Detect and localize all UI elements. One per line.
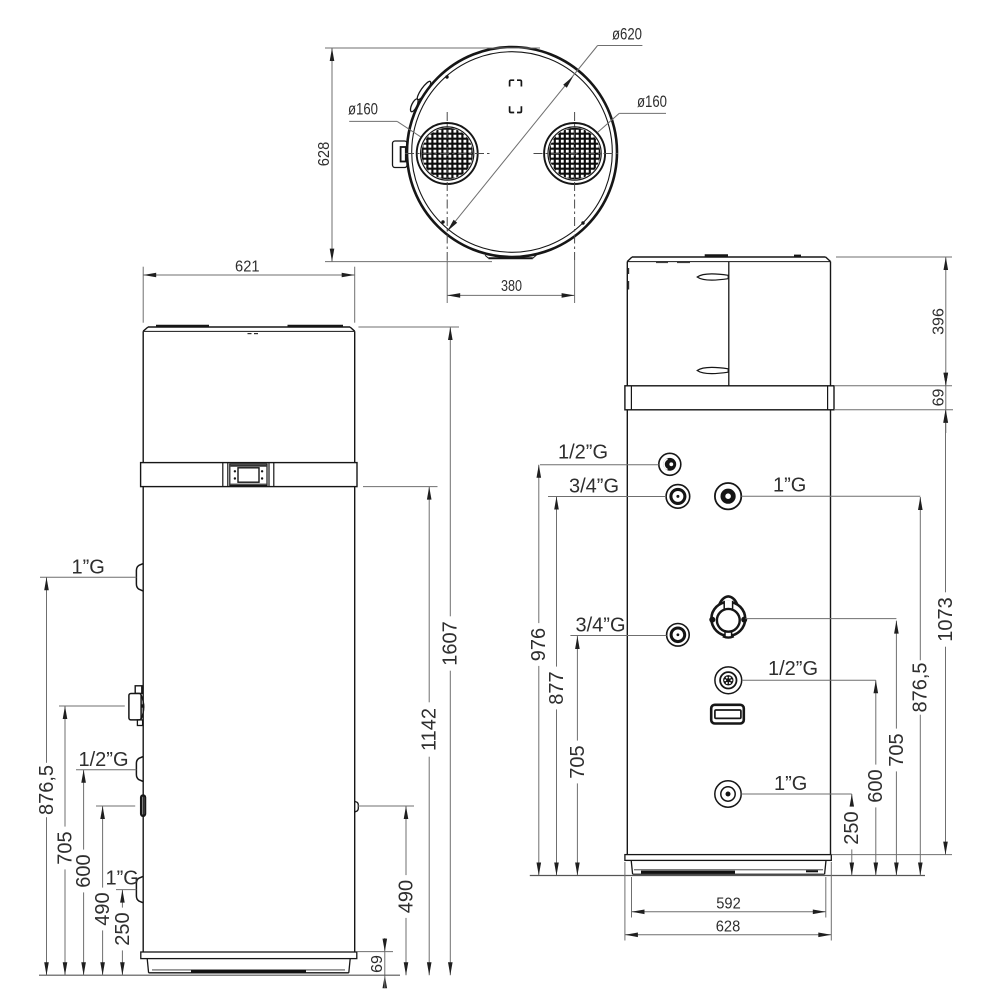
svg-text:600: 600 [73,854,95,887]
svg-text:490: 490 [92,892,114,925]
svg-text:ø160: ø160 [348,100,378,119]
svg-text:3/4”G: 3/4”G [569,476,619,498]
svg-text:69: 69 [931,389,948,407]
svg-text:1”G: 1”G [773,475,806,497]
svg-text:621: 621 [235,259,260,276]
svg-text:69: 69 [369,955,386,973]
svg-text:592: 592 [716,896,741,913]
svg-text:1073: 1073 [935,597,957,642]
svg-text:876,5: 876,5 [910,662,932,712]
svg-text:250: 250 [841,811,863,844]
svg-text:1”G: 1”G [72,557,105,579]
svg-text:1/2”G: 1/2”G [558,442,608,464]
svg-text:1607: 1607 [440,621,462,666]
svg-text:250: 250 [112,912,134,945]
svg-text:705: 705 [886,733,908,766]
svg-text:1/2”G: 1/2”G [768,658,818,680]
svg-text:ø160: ø160 [637,92,667,111]
svg-text:600: 600 [865,769,887,802]
svg-text:876,5: 876,5 [36,765,58,815]
svg-text:976: 976 [528,628,550,661]
svg-text:396: 396 [931,308,948,335]
svg-text:ø620: ø620 [612,25,642,44]
svg-text:1142: 1142 [419,708,441,751]
svg-text:490: 490 [395,880,417,913]
svg-text:628: 628 [316,142,333,167]
svg-text:380: 380 [501,278,522,295]
svg-text:628: 628 [716,919,741,936]
svg-text:3/4”G: 3/4”G [576,615,626,637]
svg-text:1”G: 1”G [774,773,807,795]
svg-text:1/2”G: 1/2”G [79,749,129,771]
svg-text:877: 877 [546,671,568,704]
svg-text:705: 705 [567,745,589,778]
svg-text:1”G: 1”G [106,868,139,890]
